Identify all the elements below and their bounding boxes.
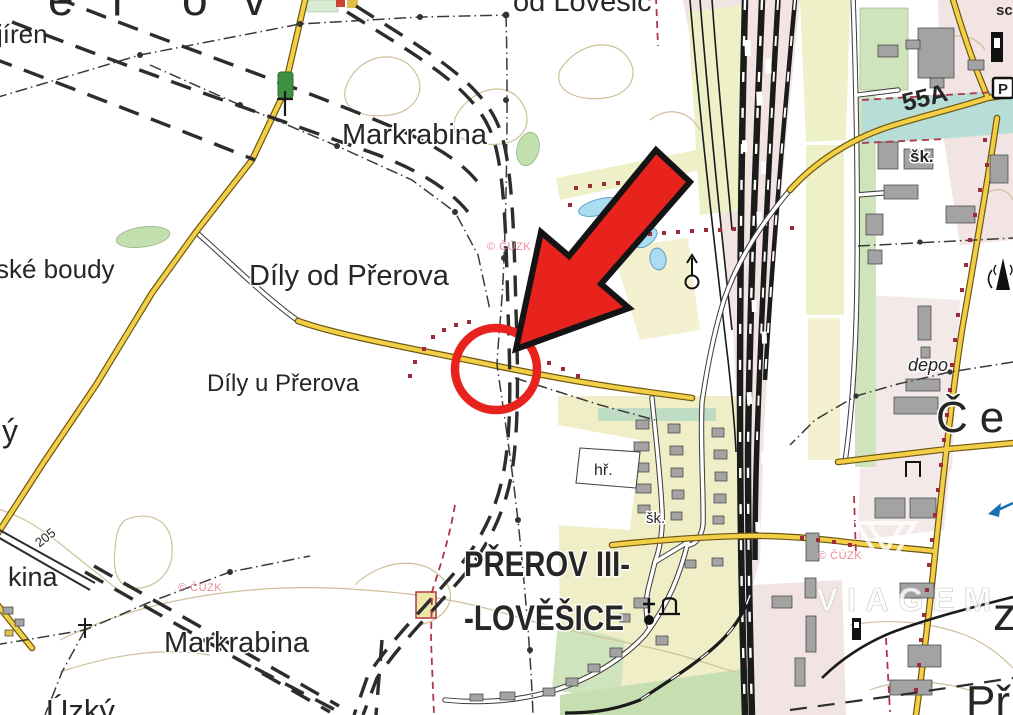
- city-letter: o: [182, 0, 208, 25]
- depot-label: depo: [908, 355, 948, 375]
- cuzk-attribution: © ČÚZK: [818, 549, 862, 562]
- cuzk-attribution: © ČÚZK: [178, 581, 222, 594]
- field-name-label: Markrabina: [164, 627, 310, 659]
- school-abbrev-label: šk.: [646, 510, 665, 527]
- place-label-partial: Úzký: [46, 693, 115, 715]
- parking-letter: P: [998, 81, 1008, 98]
- field-name-label: Díly od Přerova: [249, 260, 450, 292]
- place-label-partial: Př: [966, 677, 1011, 715]
- settlement-name-line2: -LOVĚŠICE: [464, 598, 624, 638]
- place-label-partial: sc: [996, 2, 1013, 19]
- city-letter: e: [48, 0, 74, 25]
- cuzk-attribution: © ČÚZK: [487, 240, 531, 253]
- playground-abbrev-label: hř.: [594, 462, 613, 479]
- place-label-partial: Čer: [936, 392, 1013, 442]
- place-label-partial: ské boudy: [0, 254, 115, 284]
- topo-map: P e ř o v jíren od Lověšic Markrabina Dí…: [0, 0, 1013, 715]
- place-label-partial: ý: [2, 413, 18, 449]
- city-letter: v: [243, 0, 266, 25]
- viagem-watermark-text: VIAGEM: [816, 581, 1000, 618]
- place-label-partial: jíren: [0, 19, 48, 49]
- parking-icon: P: [993, 78, 1013, 98]
- city-letter: ř: [112, 0, 129, 25]
- field-name-label: Markrabina: [342, 119, 488, 151]
- place-label-partial: kina: [8, 562, 59, 592]
- map-canvas[interactable]: P e ř o v jíren od Lověšic Markrabina Dí…: [0, 0, 1013, 715]
- school-abbrev-label: šk.: [910, 147, 934, 166]
- settlement-name-line1: PŘEROV III-: [464, 544, 630, 584]
- field-name-label: Díly u Přerova: [207, 370, 360, 397]
- field-name-label: od Lověšic: [513, 0, 652, 18]
